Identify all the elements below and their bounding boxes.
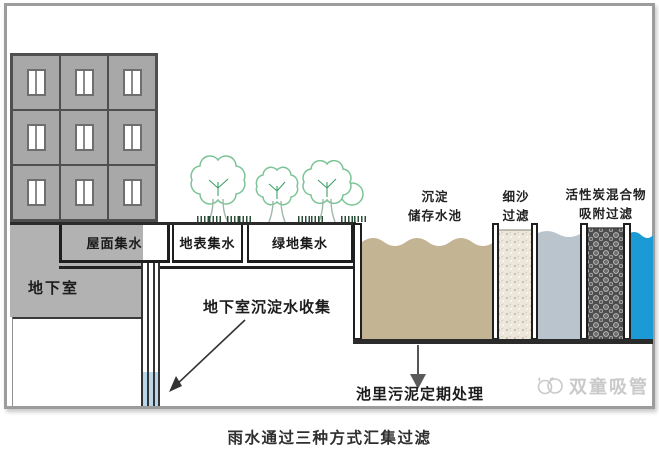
carbon-filter-media xyxy=(586,228,625,340)
building-cell xyxy=(60,110,108,165)
collection-channel-line xyxy=(59,266,353,269)
building-cell xyxy=(12,165,60,220)
caption: 雨水通过三种方式汇集过滤 xyxy=(0,426,659,448)
roof-collection-label: 屋面集水 xyxy=(86,233,142,252)
building-cell xyxy=(60,165,108,220)
downpipe-wall xyxy=(153,263,155,406)
pool-wall xyxy=(532,224,537,339)
pool-wall xyxy=(581,224,587,339)
grass-tuft-icon xyxy=(311,216,324,222)
building-window xyxy=(27,69,46,96)
carbon-filter-label: 活性炭混合物 吸附过滤 xyxy=(548,186,659,225)
grass-tuft-icon xyxy=(354,216,367,222)
roof-collection-box: 屋面集水 xyxy=(59,225,170,263)
sediment-pool-water xyxy=(362,238,494,340)
grass-tuft-icon xyxy=(239,216,252,222)
building-cell xyxy=(108,110,156,165)
rainwater-diagram-page: 屋面集水 地表集水 绿地集水 xyxy=(0,0,659,453)
green-collection-box: 绿地集水 xyxy=(247,225,353,263)
building-window xyxy=(75,179,94,206)
building-cell xyxy=(108,55,156,110)
downpipe-water xyxy=(143,372,158,406)
surface-collection-label: 地表集水 xyxy=(179,233,235,252)
pool-wall xyxy=(624,224,630,339)
basement-label: 地下室 xyxy=(28,277,79,298)
sediment-pool-label: 沉淀 储存水池 xyxy=(385,188,485,227)
grass-tuft-icon xyxy=(341,216,354,222)
building xyxy=(10,53,158,222)
arrow-down-icon xyxy=(417,345,419,375)
building-window xyxy=(27,124,46,151)
downpipe-wall xyxy=(147,263,149,406)
watermark-logo-icon xyxy=(536,376,564,396)
surface-collection-box: 地表集水 xyxy=(172,225,243,263)
building-window xyxy=(123,69,142,96)
pool-wall xyxy=(354,224,361,339)
building-cell xyxy=(108,165,156,220)
building-window xyxy=(123,124,142,151)
green-collection-label: 绿地集水 xyxy=(272,233,328,252)
watermark-text: 双童吸管 xyxy=(569,373,649,399)
building-cell xyxy=(60,55,108,110)
building-window xyxy=(123,179,142,206)
treatment-pools xyxy=(353,223,653,345)
pool-floor xyxy=(353,339,653,344)
sludge-label: 池里污泥定期处理 xyxy=(356,383,484,404)
pool-wall xyxy=(493,224,498,339)
sand-filter-media xyxy=(498,230,533,340)
basement-room xyxy=(12,317,141,406)
building-cell xyxy=(12,55,60,110)
building-window xyxy=(27,179,46,206)
trees-icon xyxy=(185,150,375,223)
building-window xyxy=(75,69,94,96)
grass-tuft-icon xyxy=(298,216,311,222)
arrow-diagonal-icon xyxy=(160,313,252,397)
watermark: 双童吸管 xyxy=(536,373,649,399)
sand-filter-label: 细沙 过滤 xyxy=(478,188,554,227)
grass-tuft-icon xyxy=(209,216,222,222)
building-window xyxy=(75,124,94,151)
building-cell xyxy=(12,110,60,165)
